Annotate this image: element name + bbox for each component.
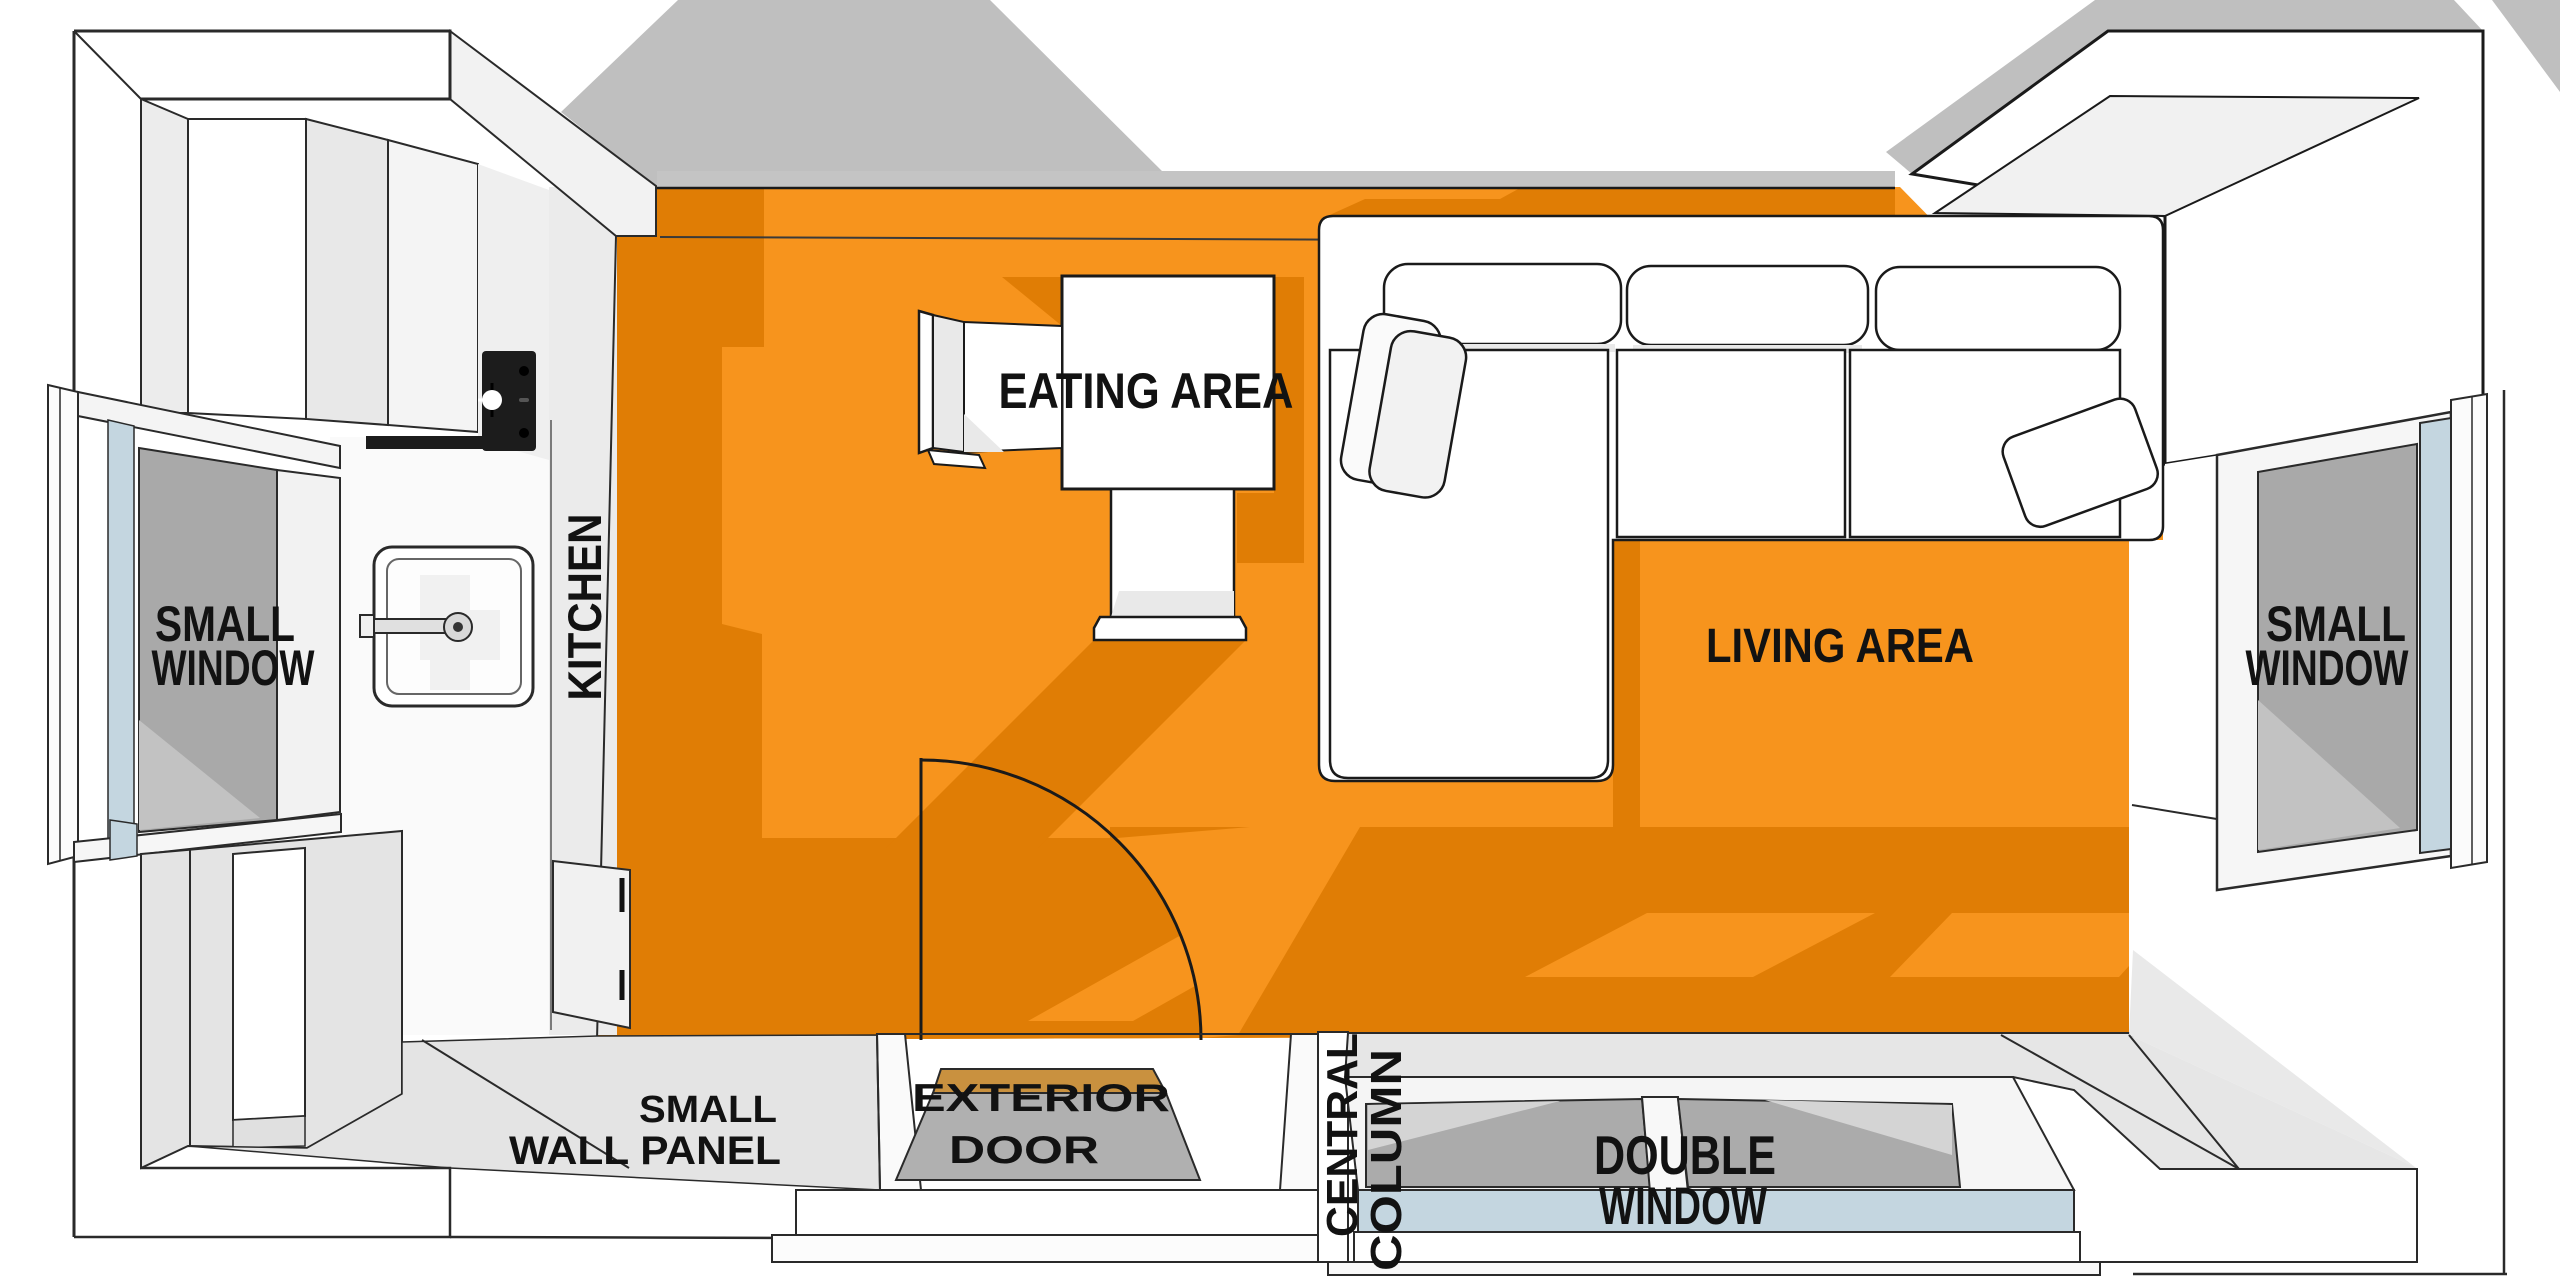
svg-text:LIVING AREA: LIVING AREA — [1706, 620, 1974, 673]
svg-text:EATING AREA: EATING AREA — [999, 363, 1294, 419]
svg-text:WINDOW: WINDOW — [1599, 1177, 1767, 1236]
svg-text:KITCHEN: KITCHEN — [558, 514, 611, 701]
svg-text:CENTRAL: CENTRAL — [1318, 1033, 1367, 1237]
svg-text:SMALL: SMALL — [639, 1089, 777, 1131]
svg-text:DOOR: DOOR — [949, 1129, 1099, 1172]
svg-text:COLUMN: COLUMN — [1362, 1049, 1411, 1271]
svg-text:WINDOW: WINDOW — [152, 640, 316, 696]
svg-text:WINDOW: WINDOW — [2246, 640, 2410, 696]
svg-text:WALL PANEL: WALL PANEL — [509, 1129, 781, 1173]
svg-text:EXTERIOR: EXTERIOR — [912, 1077, 1170, 1120]
